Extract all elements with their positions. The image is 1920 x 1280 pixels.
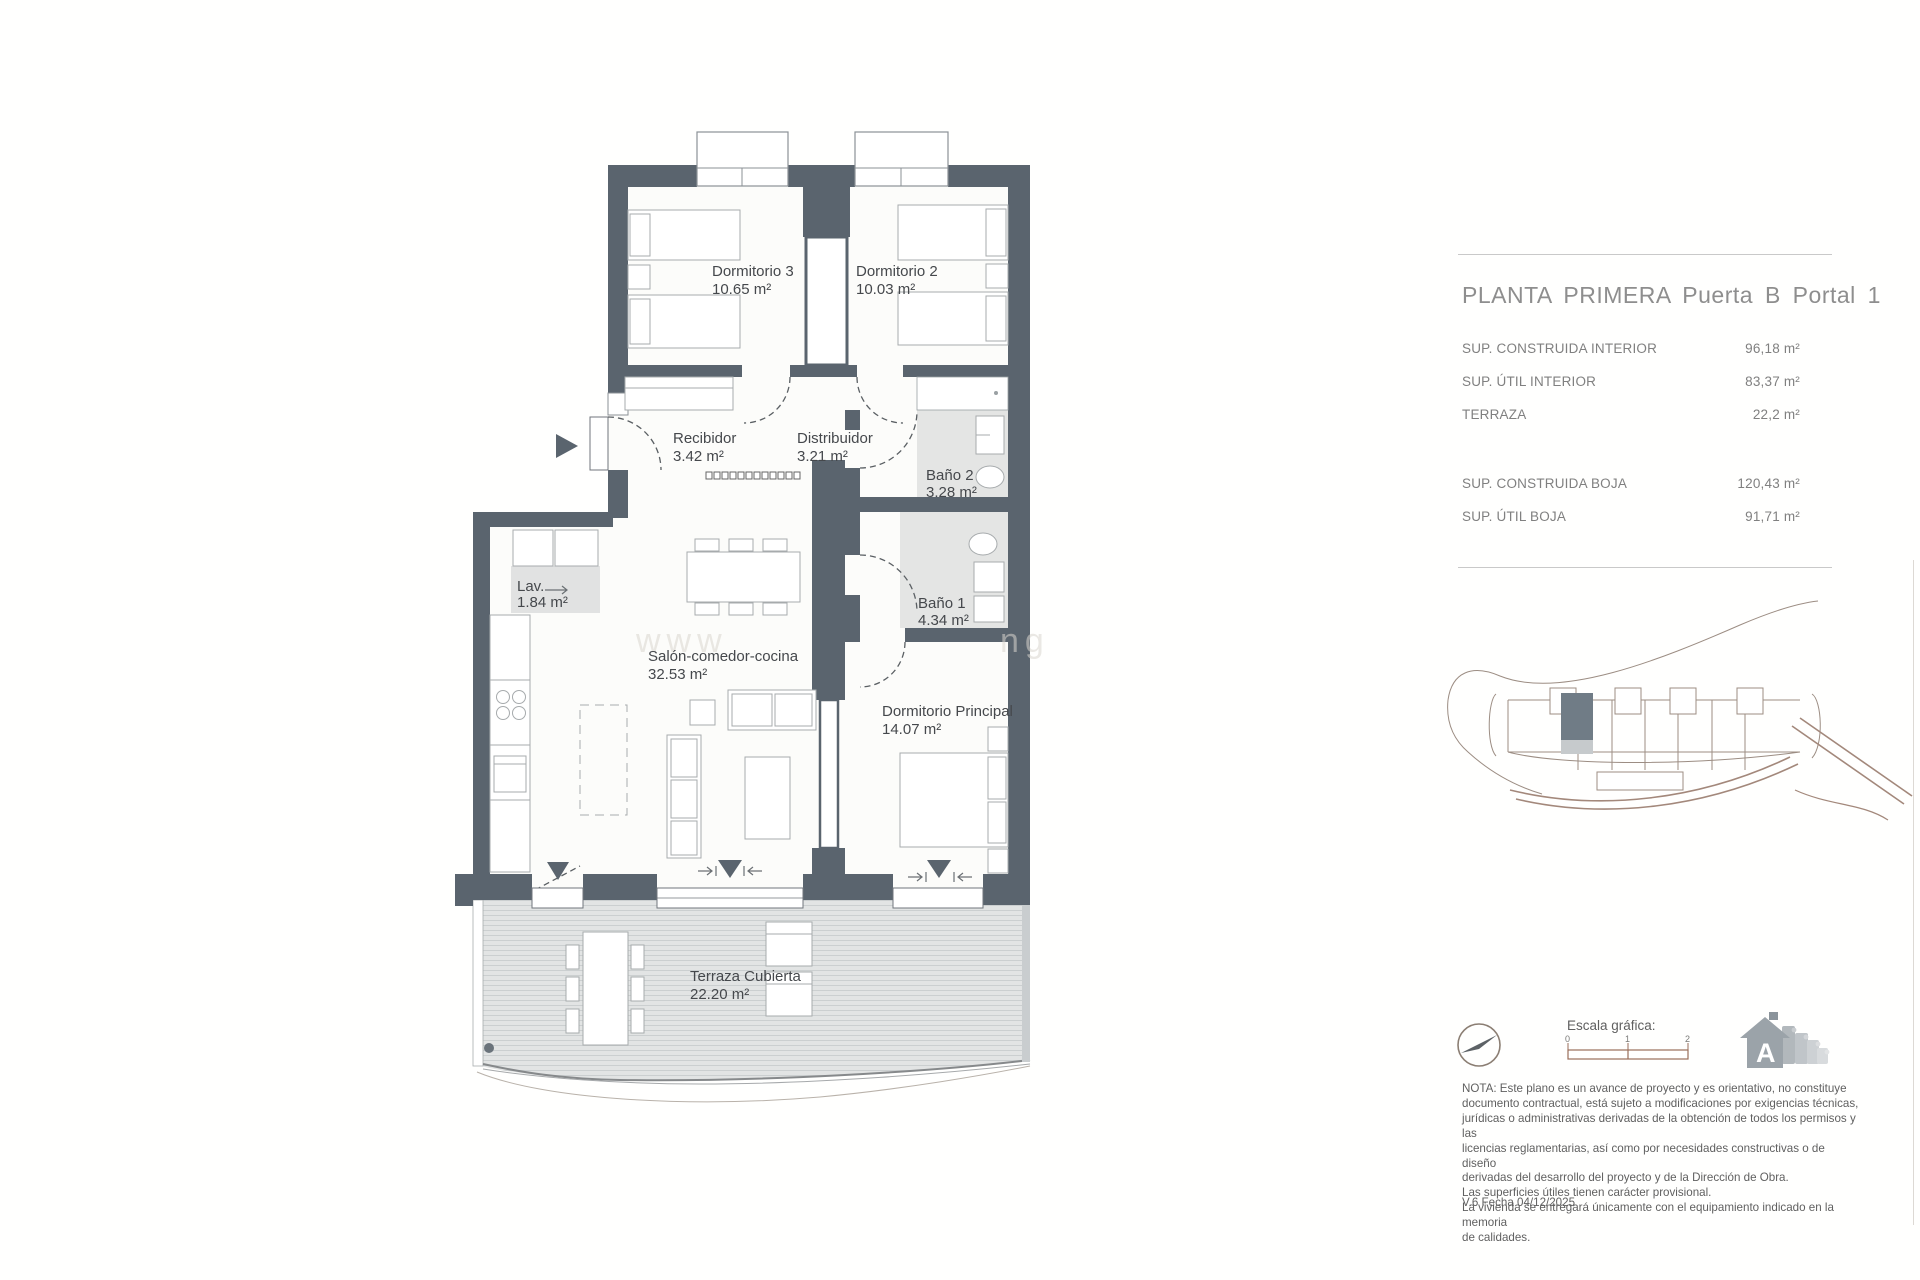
- room-label: Dormitorio Principal: [882, 703, 1013, 720]
- room-label: Dormitorio 3: [712, 263, 794, 280]
- room-label: Recibidor: [673, 430, 736, 447]
- surface-value: 83,37 m²: [1745, 374, 1800, 389]
- page-title: PLANTA PRIMERA Puerta B Portal 1: [1462, 282, 1881, 309]
- room-area: 10.03 m²: [856, 281, 915, 298]
- surface-row: SUP. CONSTRUIDA BOJA 120,43 m²: [1462, 476, 1800, 491]
- energy-rating-icon: A: [1738, 1010, 1830, 1076]
- site-plan: [1440, 580, 1920, 825]
- room-label: Distribuidor: [797, 430, 873, 447]
- surface-label: TERRAZA: [1462, 407, 1526, 422]
- scale-tick: 1: [1625, 1034, 1630, 1044]
- surface-row: SUP. ÚTIL INTERIOR 83,37 m²: [1462, 374, 1800, 389]
- room-area: 3.21 m²: [797, 448, 848, 465]
- surface-value: 96,18 m²: [1745, 341, 1800, 356]
- surface-row: SUP. CONSTRUIDA INTERIOR 96,18 m²: [1462, 341, 1800, 356]
- room-label: Baño 2: [926, 467, 974, 484]
- nota-text: NOTA: Este plano es un avance de proyect…: [1462, 1082, 1862, 1246]
- room-label: Salón-comedor-cocina: [648, 648, 799, 665]
- room-area: 3.42 m²: [673, 448, 724, 465]
- highlighted-unit: [1561, 693, 1593, 740]
- panel-divider-top: [1458, 254, 1832, 255]
- surface-row: TERRAZA 22,2 m²: [1462, 407, 1800, 422]
- room-area: 14.07 m²: [882, 721, 941, 738]
- room-label: Terraza Cubierta: [690, 968, 802, 985]
- scale-tick: 2: [1685, 1034, 1690, 1044]
- room-area: 4.34 m²: [918, 612, 969, 629]
- scale-label: Escala gráfica:: [1567, 1018, 1656, 1033]
- room-area: 22.20 m²: [690, 986, 749, 1003]
- version-text: V.6 Fecha 04/12/2025: [1462, 1196, 1575, 1209]
- floor-plan: www ng Dormitorio 3 10.65 m² Dormitorio …: [450, 118, 1050, 1123]
- closet-recibidor: [625, 377, 733, 410]
- room-area: 3.28 m²: [926, 484, 977, 501]
- fixtures-bano2: [976, 416, 1004, 488]
- compass-icon: [1452, 1018, 1508, 1074]
- surface-label: SUP. ÚTIL INTERIOR: [1462, 374, 1596, 389]
- plan-sheet: www ng Dormitorio 3 10.65 m² Dormitorio …: [0, 0, 1920, 1280]
- scale-bar: 0 1 2: [1562, 1032, 1698, 1064]
- energy-letter: A: [1756, 1038, 1776, 1068]
- room-area: 1.84 m²: [517, 594, 568, 611]
- room-label: Baño 1: [918, 595, 966, 612]
- room-area: 10.65 m²: [712, 281, 771, 298]
- surface-label: SUP. CONSTRUIDA BOJA: [1462, 476, 1627, 491]
- surface-label: SUP. ÚTIL BOJA: [1462, 509, 1566, 524]
- surface-value: 22,2 m²: [1753, 407, 1800, 422]
- surface-value: 120,43 m²: [1737, 476, 1800, 491]
- room-label: Dormitorio 2: [856, 263, 938, 280]
- surface-row: SUP. ÚTIL BOJA 91,71 m²: [1462, 509, 1800, 524]
- surface-label: SUP. CONSTRUIDA INTERIOR: [1462, 341, 1657, 356]
- panel-divider-bottom: [1458, 567, 1832, 568]
- room-label: Lav.: [517, 578, 544, 595]
- entry-arrow-icon: [556, 434, 578, 458]
- terrace-deck: [473, 900, 1030, 1102]
- surface-value: 91,71 m²: [1745, 509, 1800, 524]
- room-area: 32.53 m²: [648, 666, 707, 683]
- watermark: ng: [1000, 622, 1050, 660]
- dining-set: [687, 539, 800, 615]
- scale-tick: 0: [1565, 1034, 1570, 1044]
